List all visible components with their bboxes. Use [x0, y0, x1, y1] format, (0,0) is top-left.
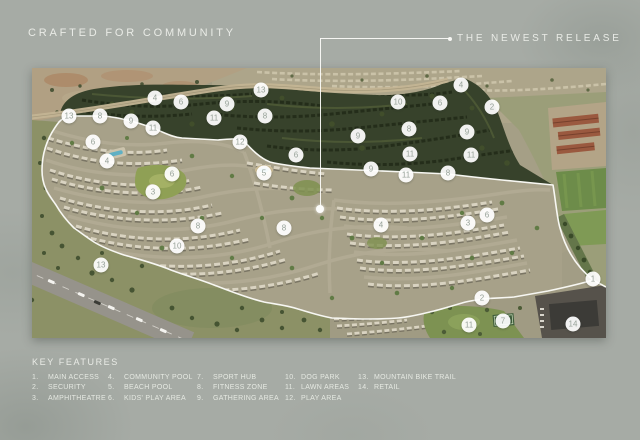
map-marker-6: 6 [480, 208, 495, 223]
map-marker-9: 9 [364, 162, 379, 177]
legend-item: 5.BEACH POOL [108, 383, 193, 393]
legend-item-label: FITNESS ZONE [213, 383, 268, 393]
map-marker-3: 3 [146, 185, 161, 200]
legend-item-number: 2. [32, 383, 48, 393]
legend-item: 2.SECURITY [32, 383, 106, 393]
map-marker-14: 14 [566, 317, 581, 332]
legend-item: 4.COMMUNITY POOL [108, 373, 193, 383]
legend-item-label: COMMUNITY POOL [124, 373, 193, 383]
callout-label: THE NEWEST RELEASE [457, 33, 622, 44]
map-marker-4: 4 [374, 218, 389, 233]
legend-item-number: 6. [108, 394, 124, 404]
key-features-title: KEY FEATURES [32, 357, 119, 367]
map-marker-5: 5 [257, 166, 272, 181]
map-marker-8: 8 [93, 109, 108, 124]
map-marker-11: 11 [462, 318, 477, 333]
map-marker-8: 8 [441, 166, 456, 181]
map-marker-8: 8 [277, 221, 292, 236]
map-marker-1: 1 [586, 272, 601, 287]
map-marker-6: 6 [165, 167, 180, 182]
legend-column: 13.MOUNTAIN BIKE TRAIL14.RETAIL [358, 373, 456, 394]
legend-item-number: 10. [285, 373, 301, 383]
legend-item-label: MOUNTAIN BIKE TRAIL [374, 373, 456, 383]
legend-item-label: SPORT HUB [213, 373, 256, 383]
legend-item-label: LAWN AREAS [301, 383, 349, 393]
legend-column: 4.COMMUNITY POOL5.BEACH POOL6.KIDS' PLAY… [108, 373, 193, 404]
legend-item: 9.GATHERING AREA [197, 394, 279, 404]
legend-item-number: 3. [32, 394, 48, 404]
legend-item-label: PLAY AREA [301, 394, 342, 404]
legend-item-label: BEACH POOL [124, 383, 173, 393]
map-marker-11: 11 [403, 147, 418, 162]
legend-item: 14.RETAIL [358, 383, 456, 393]
legend-item-number: 1. [32, 373, 48, 383]
map-marker-4: 4 [454, 78, 469, 93]
map-marker-8: 8 [191, 219, 206, 234]
legend-item: 7.SPORT HUB [197, 373, 279, 383]
legend-column: 10.DOG PARK11.LAWN AREAS12.PLAY AREA [285, 373, 349, 404]
legend-item-label: DOG PARK [301, 373, 340, 383]
key-features-list: 1.MAIN ACCESS2.SECURITY3.AMPHITHEATRE4.C… [0, 373, 640, 413]
legend-item-number: 11. [285, 383, 301, 393]
legend-item: 6.KIDS' PLAY AREA [108, 394, 193, 404]
legend-item-number: 14. [358, 383, 374, 393]
map-marker-9: 9 [124, 114, 139, 129]
map-marker-11: 11 [464, 148, 479, 163]
legend-item-number: 8. [197, 383, 213, 393]
map-marker-2: 2 [485, 100, 500, 115]
map-marker-6: 6 [433, 96, 448, 111]
legend-item-label: RETAIL [374, 383, 400, 393]
map-marker-6: 6 [289, 148, 304, 163]
legend-item: 10.DOG PARK [285, 373, 349, 383]
legend-item: 8.FITNESS ZONE [197, 383, 279, 393]
callout-target-dot [316, 205, 324, 213]
map-marker-13: 13 [254, 83, 269, 98]
legend-item-label: MAIN ACCESS [48, 373, 99, 383]
legend-item: 12.PLAY AREA [285, 394, 349, 404]
legend-item-label: GATHERING AREA [213, 394, 279, 404]
legend-item: 13.MOUNTAIN BIKE TRAIL [358, 373, 456, 383]
map-marker-4: 4 [100, 154, 115, 169]
legend-item: 11.LAWN AREAS [285, 383, 349, 393]
map-marker-4: 4 [148, 91, 163, 106]
map-marker-10: 10 [391, 95, 406, 110]
map-marker-11: 11 [146, 121, 161, 136]
legend-item: 3.AMPHITHEATRE [32, 394, 106, 404]
map-marker-12: 12 [233, 135, 248, 150]
map-marker-9: 9 [460, 125, 475, 140]
legend-item-number: 9. [197, 394, 213, 404]
map-marker-2: 2 [475, 291, 490, 306]
map-marker-8: 8 [258, 109, 273, 124]
map-marker-11: 11 [207, 111, 222, 126]
map-marker-7: 7 [496, 314, 511, 329]
map-marker-3: 3 [461, 216, 476, 231]
legend-item-number: 12. [285, 394, 301, 404]
legend-item: 1.MAIN ACCESS [32, 373, 106, 383]
map-marker-10: 10 [170, 239, 185, 254]
legend-item-number: 5. [108, 383, 124, 393]
map-marker-8: 8 [402, 122, 417, 137]
callout-line-dot [448, 37, 452, 41]
map-marker-6: 6 [86, 135, 101, 150]
map-marker-9: 9 [220, 97, 235, 112]
map-marker-13: 13 [62, 109, 77, 124]
legend-item-label: KIDS' PLAY AREA [124, 394, 186, 404]
map-marker-6: 6 [174, 95, 189, 110]
legend-item-number: 13. [358, 373, 374, 383]
callout-vertical-line [320, 38, 321, 209]
legend-item-number: 7. [197, 373, 213, 383]
legend-column: 1.MAIN ACCESS2.SECURITY3.AMPHITHEATRE [32, 373, 106, 404]
map-marker-11: 11 [399, 168, 414, 183]
callout-horizontal-line [320, 38, 450, 39]
legend-item-label: AMPHITHEATRE [48, 394, 106, 404]
map-marker-9: 9 [351, 129, 366, 144]
map-marker-13: 13 [94, 258, 109, 273]
legend-item-number: 4. [108, 373, 124, 383]
legend-item-label: SECURITY [48, 383, 86, 393]
page-title: CRAFTED FOR COMMUNITY [28, 27, 236, 39]
legend-column: 7.SPORT HUB8.FITNESS ZONE9.GATHERING ARE… [197, 373, 279, 404]
